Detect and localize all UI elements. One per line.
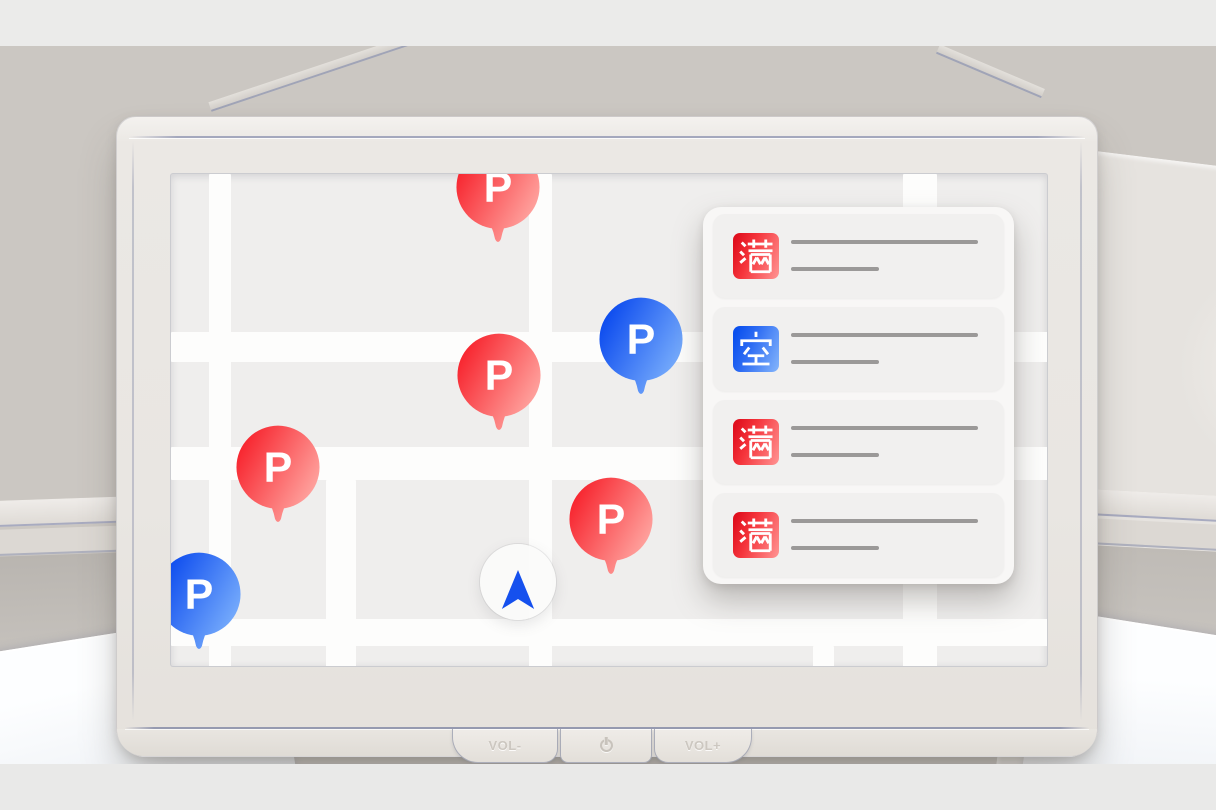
- parking-pin-full[interactable]: P: [235, 424, 321, 533]
- vol-up-label: VOL+: [685, 738, 721, 753]
- parking-pin-full[interactable]: P: [456, 332, 542, 441]
- svg-text:P: P: [627, 316, 656, 364]
- placeholder-line-secondary: [791, 360, 879, 364]
- dashboard-seam-right: [936, 44, 1045, 98]
- navigation-arrow-icon: [499, 569, 537, 611]
- placeholder-line-secondary: [791, 546, 879, 550]
- vol-up-button[interactable]: VOL+: [654, 729, 752, 763]
- infotainment-display: 満 空 満 満: [116, 116, 1098, 757]
- bezel-seam-left: [132, 141, 134, 720]
- status-badge: 満: [733, 512, 779, 558]
- placeholder-line-primary: [791, 333, 978, 337]
- svg-text:P: P: [264, 444, 293, 492]
- scene: 満 空 満 満: [0, 0, 1216, 810]
- placeholder-line-secondary: [791, 267, 879, 271]
- hardware-button-bar: VOL- VOL+: [452, 729, 752, 763]
- current-location-marker: [480, 544, 556, 620]
- status-badge: 満: [733, 419, 779, 465]
- letterbox-top: [0, 0, 1216, 46]
- power-button[interactable]: [560, 729, 652, 763]
- bezel-seam-top: [129, 136, 1085, 138]
- parking-list-item[interactable]: 満: [713, 493, 1004, 577]
- map-road-vertical: [326, 480, 356, 667]
- parking-list-panel[interactable]: 満 空 満 満: [703, 207, 1014, 584]
- parking-list-item[interactable]: 空: [713, 307, 1004, 391]
- svg-text:P: P: [597, 496, 626, 544]
- placeholder-line-primary: [791, 426, 978, 430]
- parking-pin-full[interactable]: P: [455, 173, 541, 253]
- svg-text:P: P: [484, 173, 513, 212]
- parking-list-item[interactable]: 満: [713, 400, 1004, 484]
- parking-pin-full[interactable]: P: [568, 476, 654, 585]
- parking-list-item[interactable]: 満: [713, 214, 1004, 298]
- placeholder-line-primary: [791, 240, 978, 244]
- letterbox-bottom: [0, 764, 1216, 810]
- map-view[interactable]: 満 空 満 満: [170, 173, 1048, 667]
- map-road-vertical: [813, 646, 834, 667]
- bezel-seam-right: [1080, 141, 1082, 720]
- svg-text:P: P: [485, 352, 514, 400]
- power-icon: [600, 739, 613, 752]
- parking-pin-vacant[interactable]: P: [170, 551, 242, 660]
- vol-down-label: VOL-: [488, 738, 521, 753]
- status-badge: 空: [733, 326, 779, 372]
- parking-pin-vacant[interactable]: P: [598, 296, 684, 405]
- svg-text:P: P: [185, 571, 214, 619]
- vol-down-button[interactable]: VOL-: [452, 729, 558, 763]
- placeholder-line-primary: [791, 519, 978, 523]
- status-badge: 満: [733, 233, 779, 279]
- placeholder-line-secondary: [791, 453, 879, 457]
